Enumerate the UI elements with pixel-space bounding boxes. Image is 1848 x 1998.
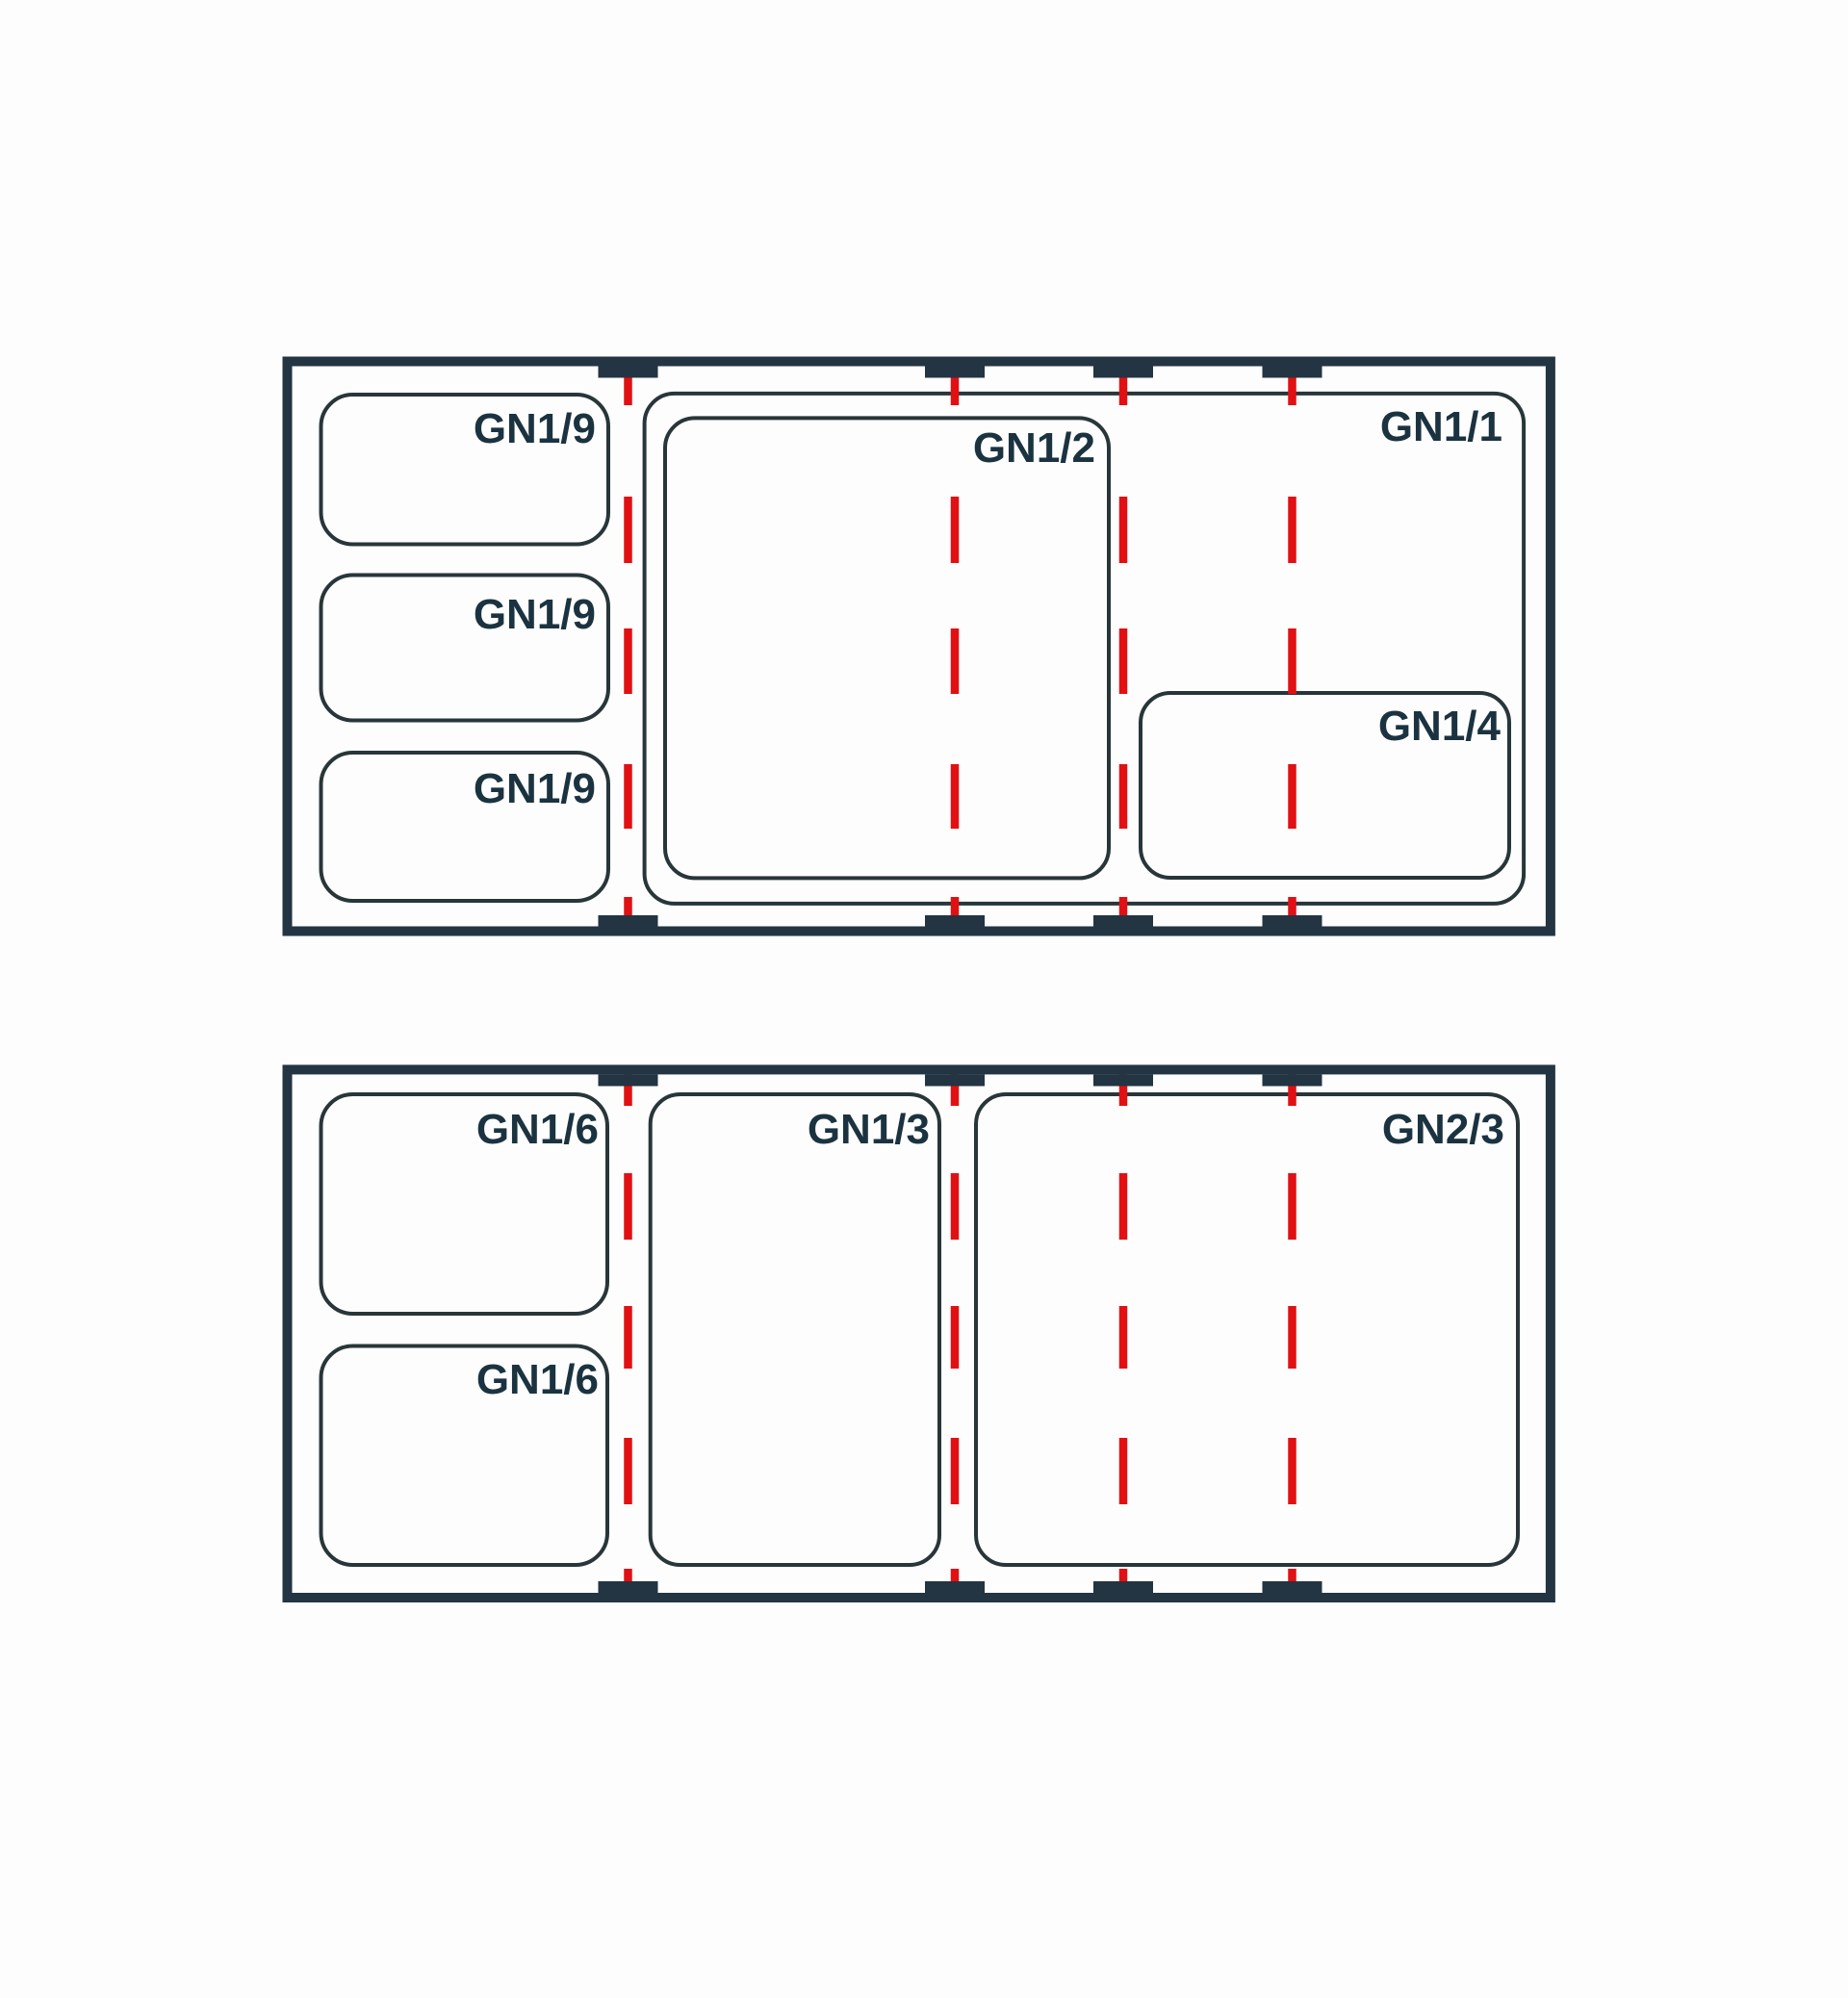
svg-text:GN1/9: GN1/9 <box>474 405 596 452</box>
svg-text:GN1/4: GN1/4 <box>1378 703 1501 750</box>
svg-text:GN1/6: GN1/6 <box>476 1356 599 1403</box>
svg-text:GN1/1: GN1/1 <box>1380 403 1502 450</box>
svg-text:GN1/3: GN1/3 <box>808 1106 930 1153</box>
svg-text:GN1/9: GN1/9 <box>474 765 596 812</box>
svg-text:GN2/3: GN2/3 <box>1382 1106 1504 1153</box>
svg-text:GN1/9: GN1/9 <box>474 591 596 638</box>
svg-text:GN1/2: GN1/2 <box>973 424 1095 472</box>
svg-text:GN1/6: GN1/6 <box>476 1106 599 1153</box>
